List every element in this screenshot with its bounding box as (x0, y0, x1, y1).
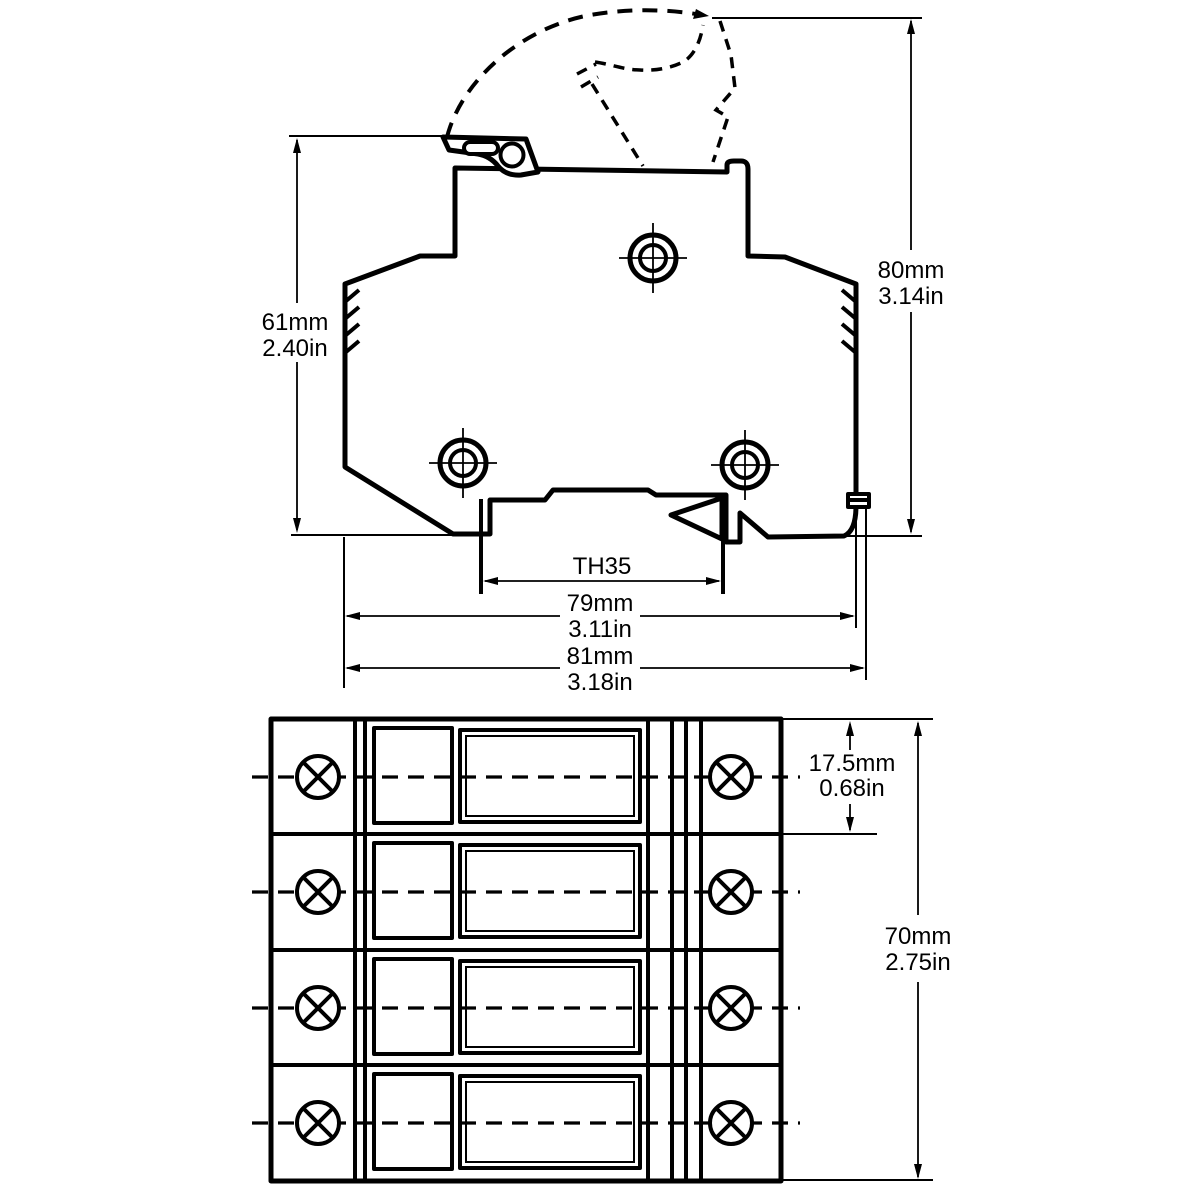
ghost-grip-notch (577, 64, 598, 87)
latch-slot (464, 142, 498, 154)
din-clip-triangle (671, 498, 722, 539)
dim-th35-label: TH35 (573, 553, 632, 580)
side-view: 61mm 2.40in 80mm 3.14in TH35 (262, 9, 945, 696)
dim-80mm-label-in: 3.14in (878, 283, 943, 310)
pole-row-4 (252, 1074, 800, 1169)
fuse-carrier-ghost (577, 21, 735, 166)
dim-79mm-label-in: 3.11in (568, 616, 632, 643)
ghost-right-edge (713, 21, 735, 162)
dim-79mm-label-mm: 79mm (567, 590, 634, 617)
dim-17-5mm-label-mm: 17.5mm (809, 750, 896, 777)
ghost-left-edge (592, 84, 643, 166)
carrier-swing-arc (447, 10, 702, 137)
dim-70mm-label-mm: 70mm (885, 923, 952, 950)
front-view: 17.5mm 0.68in 70mm 2.75in (252, 719, 951, 1181)
pole-row-2 (252, 843, 800, 938)
housing-outline (345, 161, 856, 542)
dim-81mm-label-mm: 81mm (567, 643, 634, 670)
pole-row-1 (252, 728, 800, 823)
dim-70mm-label-in: 2.75in (885, 949, 950, 976)
latch-pivot-circle (501, 144, 524, 167)
fuse-holder-dimension-drawing: 61mm 2.40in 80mm 3.14in TH35 (0, 0, 1200, 1200)
dim-80mm-label-mm: 80mm (878, 257, 945, 284)
dim-17-5mm-label-in: 0.68in (819, 775, 884, 802)
dim-61mm-label-mm: 61mm (262, 309, 329, 336)
dim-81mm-label-in: 3.18in (567, 669, 632, 696)
dim-61mm-label-in: 2.40in (262, 335, 327, 362)
arc-arrowhead (693, 9, 709, 19)
pole-row-3 (252, 959, 800, 1054)
technical-drawing-page: 61mm 2.40in 80mm 3.14in TH35 (0, 0, 1200, 1200)
ghost-top-edge (595, 25, 703, 70)
